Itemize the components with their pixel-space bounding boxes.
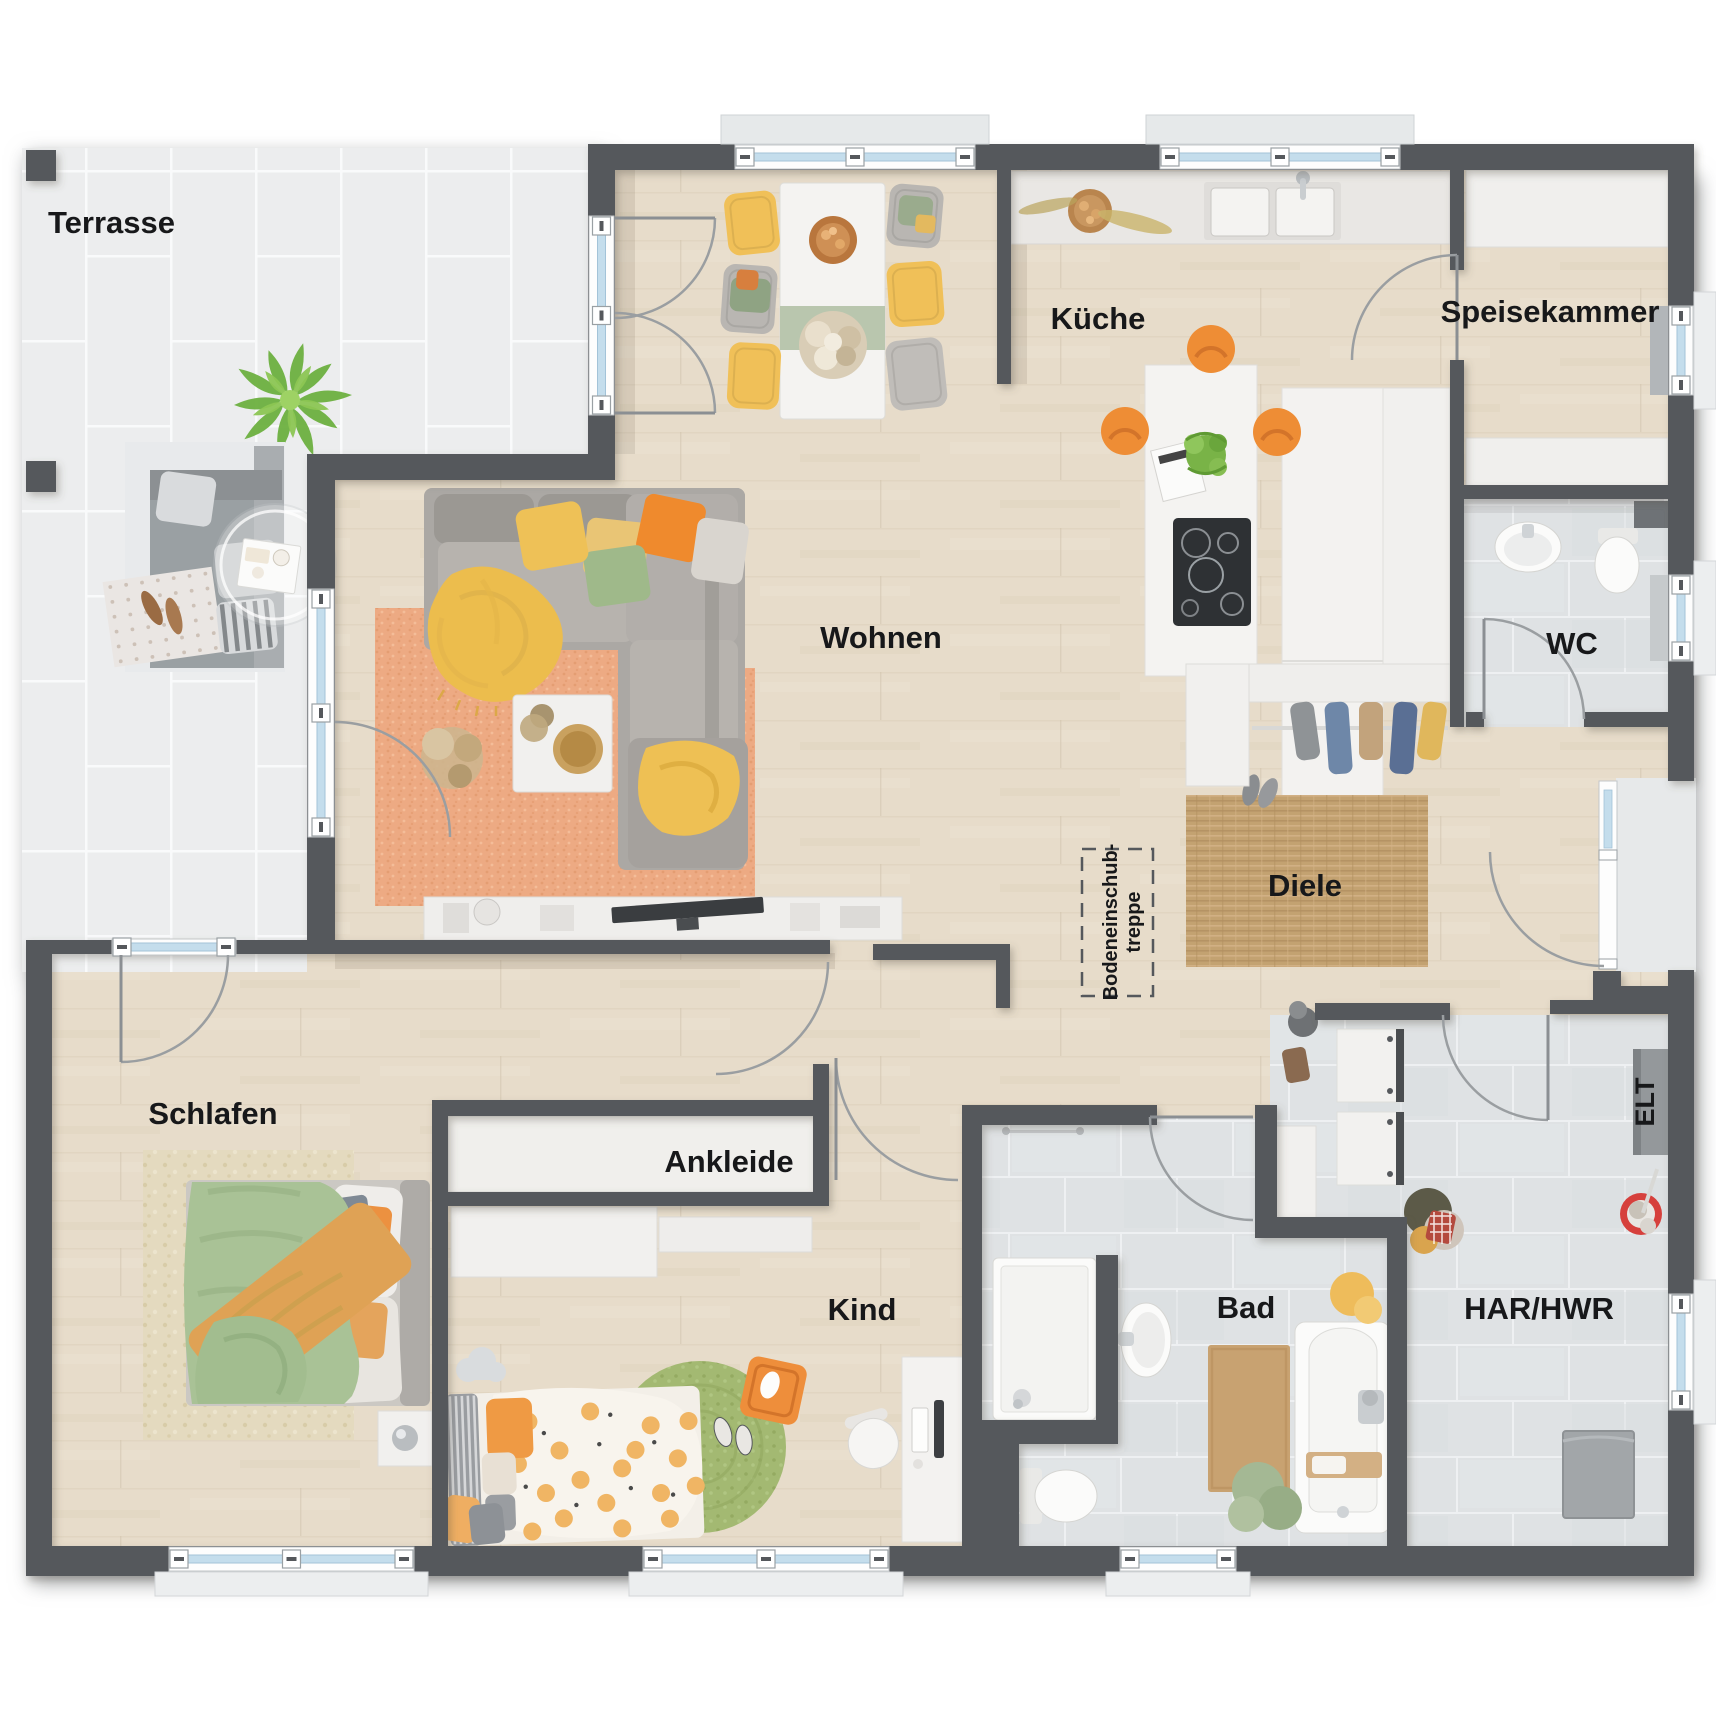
svg-text:Bodeneinschub-: Bodeneinschub-	[1100, 844, 1122, 1001]
svg-text:WC: WC	[1546, 626, 1598, 661]
svg-text:Ankleide: Ankleide	[664, 1144, 793, 1179]
svg-text:Diele: Diele	[1268, 868, 1342, 903]
svg-text:HAR/HWR: HAR/HWR	[1464, 1291, 1614, 1326]
svg-text:ELT: ELT	[1630, 1077, 1660, 1126]
svg-text:Speisekammer: Speisekammer	[1441, 294, 1660, 329]
svg-text:Terrasse: Terrasse	[48, 205, 175, 240]
svg-text:Bad: Bad	[1217, 1290, 1276, 1325]
svg-text:Küche: Küche	[1051, 301, 1146, 336]
svg-text:Kind: Kind	[828, 1292, 897, 1327]
svg-text:treppe: treppe	[1123, 891, 1145, 952]
svg-text:Schlafen: Schlafen	[148, 1096, 277, 1131]
svg-text:Wohnen: Wohnen	[820, 620, 942, 655]
